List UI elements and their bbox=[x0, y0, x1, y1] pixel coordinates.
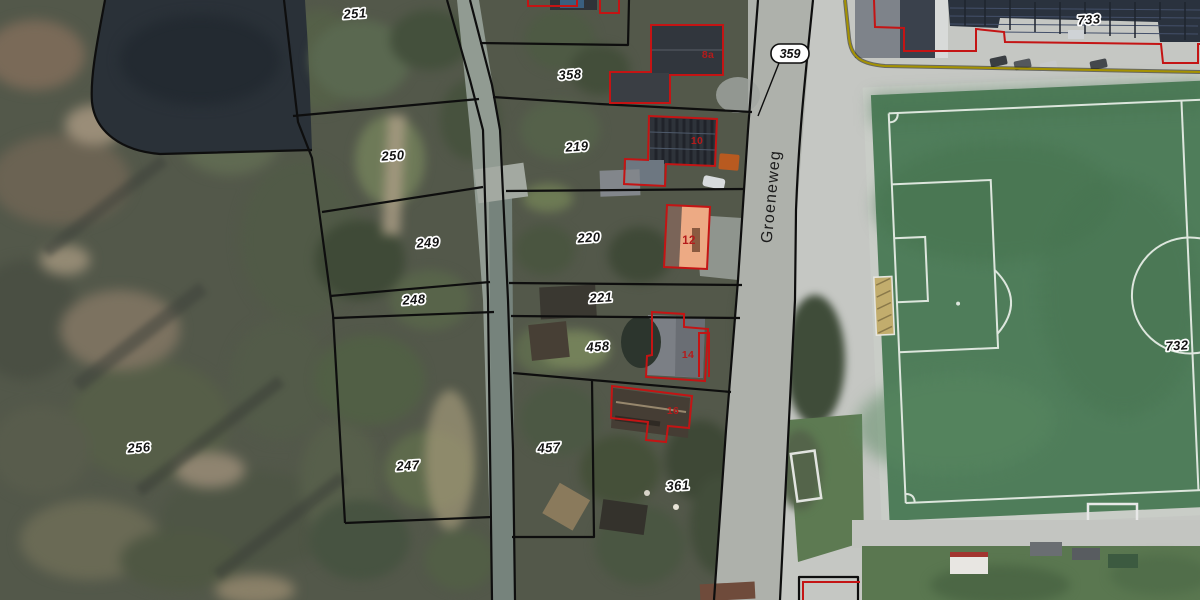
parcel-label-358: 358 bbox=[558, 66, 582, 83]
parcel-label-732: 732 bbox=[1165, 337, 1189, 354]
house-number-8a: 8a bbox=[702, 49, 714, 61]
house-number-16: 16 bbox=[667, 405, 679, 417]
house-number-10: 10 bbox=[691, 135, 703, 147]
house-number-12[interactable]: 12 bbox=[682, 235, 695, 247]
parcel-label-248: 248 bbox=[401, 291, 426, 308]
parcel-label-361: 361 bbox=[666, 477, 690, 494]
parcel-label-250: 250 bbox=[380, 147, 405, 164]
map-viewport[interactable]: Groeneweg 251 358 250 219 249 220 248 22… bbox=[0, 0, 1200, 600]
container-gray-1 bbox=[1030, 542, 1062, 556]
sports-bottom-strip bbox=[852, 520, 1200, 600]
parcel-label-458: 458 bbox=[585, 338, 610, 355]
parcel-label-221: 221 bbox=[588, 289, 613, 306]
parcel-label-220: 220 bbox=[576, 229, 601, 246]
parcel-label-256: 256 bbox=[126, 439, 151, 456]
map-canvas[interactable]: Groeneweg 251 358 250 219 249 220 248 22… bbox=[0, 0, 1200, 600]
driveway-8a bbox=[716, 77, 760, 113]
soccer-field bbox=[841, 71, 1200, 530]
parcel-label-247: 247 bbox=[395, 457, 420, 474]
container-gray-2 bbox=[1072, 548, 1100, 560]
parcel-label-359: 359 bbox=[780, 47, 801, 61]
car-orange bbox=[718, 153, 739, 171]
parcel-label-251: 251 bbox=[342, 5, 367, 22]
parcel-label-457: 457 bbox=[536, 439, 561, 456]
car-headlight bbox=[673, 504, 679, 510]
parcel-label-249: 249 bbox=[415, 234, 440, 251]
parcel-label-219: 219 bbox=[564, 138, 589, 155]
parcel-label-733: 733 bbox=[1077, 11, 1101, 28]
house-number-14: 14 bbox=[682, 349, 694, 361]
container-green bbox=[1108, 554, 1138, 568]
